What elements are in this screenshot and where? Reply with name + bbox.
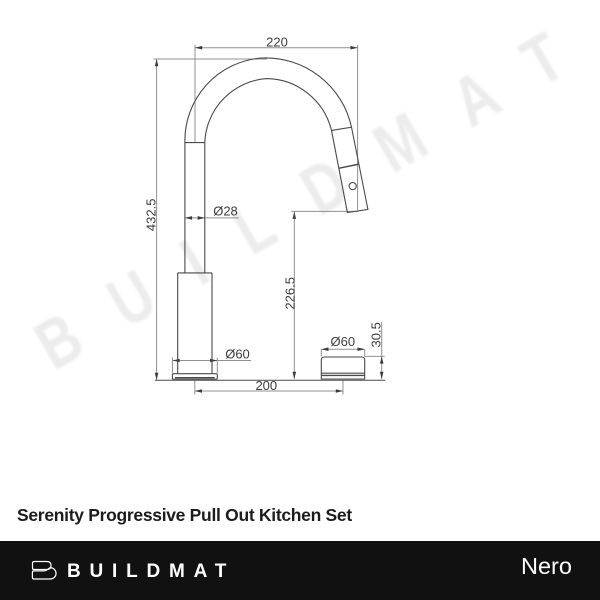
svg-text:432.5: 432.5 — [144, 199, 159, 232]
svg-text:226.5: 226.5 — [283, 277, 298, 310]
svg-text:220: 220 — [266, 34, 288, 49]
svg-text:30.5: 30.5 — [369, 322, 384, 347]
svg-text:Ø28: Ø28 — [213, 204, 238, 219]
svg-text:Ø60: Ø60 — [331, 334, 356, 349]
svg-text:200: 200 — [255, 378, 277, 393]
svg-text:Ø60: Ø60 — [225, 346, 250, 361]
